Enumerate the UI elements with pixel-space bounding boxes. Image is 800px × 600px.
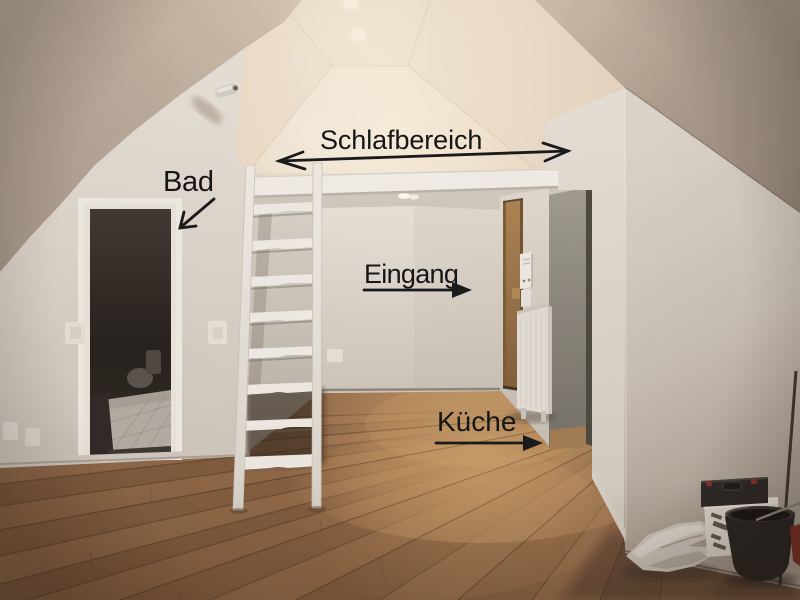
svg-text:Schlafbereich: Schlafbereich [320, 125, 482, 155]
svg-text:Bad: Bad [163, 166, 214, 198]
svg-text:Eingang: Eingang [364, 259, 458, 289]
svg-text:Küche: Küche [437, 406, 516, 437]
